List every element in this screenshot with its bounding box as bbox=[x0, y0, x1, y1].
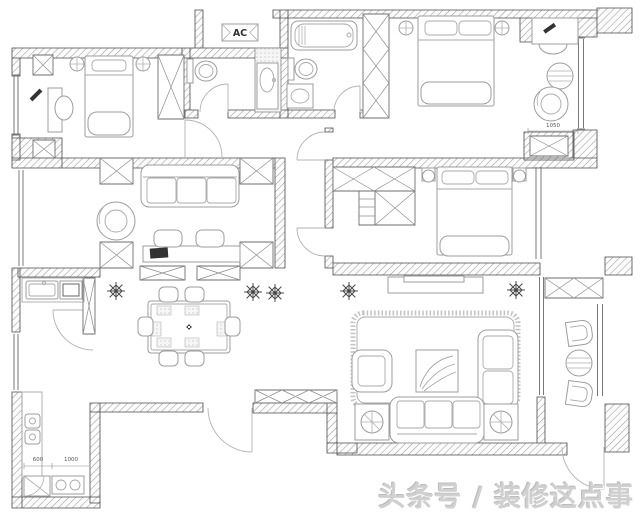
toilet1-tank bbox=[187, 59, 193, 83]
floor-plan-page: AC bbox=[0, 0, 640, 514]
study-chair1 bbox=[154, 230, 182, 247]
prep-sink-bowl1 bbox=[25, 414, 40, 428]
dining-chair-bottom2 bbox=[185, 351, 204, 366]
bed2-duvet-foot bbox=[440, 236, 509, 256]
dining-chair-left bbox=[138, 317, 153, 336]
wall-bedroom2-right bbox=[536, 167, 541, 259]
bed2-lamp-right-icon bbox=[514, 170, 526, 182]
toilet2-tank bbox=[288, 58, 294, 80]
prep-sink-bowl2 bbox=[25, 430, 40, 444]
dining-chair-top1 bbox=[159, 287, 178, 302]
ac-platform: AC bbox=[222, 24, 258, 41]
watermark-text: 头条号 / 装修这点事 bbox=[378, 475, 634, 514]
bedroom1-desk-chair bbox=[55, 96, 73, 120]
dining-chair-top2 bbox=[185, 287, 204, 302]
balcony-chair-bottom-shell bbox=[565, 380, 593, 407]
bedroom2-furniture bbox=[422, 167, 526, 256]
master-swivel-chair bbox=[534, 87, 568, 121]
door-bedroom2-bottom bbox=[297, 228, 325, 256]
living-room-furniture bbox=[352, 276, 518, 443]
dining-furniture bbox=[138, 287, 240, 366]
window-bedroom1-left bbox=[12, 75, 20, 135]
toilet1-bowl bbox=[195, 61, 217, 81]
door-bath1 bbox=[200, 84, 228, 112]
vanity1-counter bbox=[257, 63, 278, 109]
plant-icon bbox=[266, 284, 284, 302]
dim-1050-label: 1050 bbox=[546, 123, 560, 129]
balcony-chair-top-shell bbox=[565, 319, 593, 346]
bathroom1-fixtures bbox=[187, 59, 278, 109]
bed1-duvet-foot bbox=[88, 112, 130, 135]
study-laptop-icon bbox=[150, 247, 169, 258]
door-bath2 bbox=[334, 86, 360, 112]
plant-icon bbox=[507, 281, 525, 299]
placemat bbox=[157, 306, 171, 315]
plant-icon bbox=[244, 283, 262, 301]
balcony-chair-bottom bbox=[565, 380, 593, 407]
window-master-right bbox=[577, 38, 585, 129]
balcony-furniture bbox=[565, 319, 593, 407]
study-sofa bbox=[141, 165, 239, 207]
door-hall bbox=[185, 120, 222, 157]
ac-label: AC bbox=[233, 28, 247, 39]
dining-chair-right bbox=[225, 317, 240, 336]
master-desk bbox=[532, 18, 578, 44]
master-bedroom-furniture: 1050 bbox=[399, 16, 578, 134]
tv-set bbox=[404, 276, 464, 282]
window-study-left bbox=[19, 170, 23, 266]
master-desk-chair bbox=[539, 44, 567, 54]
desk1-pen-icon bbox=[30, 89, 43, 102]
bathroom2-fixtures bbox=[287, 21, 357, 108]
glass-partition-balcony bbox=[540, 277, 544, 395]
bed2-lamp-left-icon bbox=[423, 170, 435, 182]
plant-icon bbox=[340, 282, 358, 300]
kitchen-dim-line bbox=[24, 463, 90, 469]
kitchen-fixtures: 600 1000 bbox=[22, 278, 90, 496]
door-bedroom2-top bbox=[297, 132, 325, 160]
dining-chair-bottom1 bbox=[159, 351, 178, 366]
window-balcony-right bbox=[598, 304, 603, 396]
dim-1000-label: 1000 bbox=[64, 457, 78, 463]
balcony-chair-top bbox=[565, 319, 593, 346]
stove bbox=[52, 476, 84, 494]
master-duvet-foot bbox=[421, 82, 491, 104]
floor-plan-drawing: AC bbox=[0, 0, 640, 514]
toilet2-bowl bbox=[295, 59, 317, 79]
study-swivel-chair bbox=[97, 202, 135, 240]
window-kitchen-left bbox=[14, 334, 18, 390]
dim-600-label: 600 bbox=[33, 457, 44, 463]
door-entry bbox=[208, 408, 252, 452]
placemat bbox=[157, 338, 171, 347]
plant-icon bbox=[107, 282, 125, 300]
placemat bbox=[185, 338, 199, 347]
study-chair2 bbox=[196, 230, 224, 247]
sofa-three-seat bbox=[390, 397, 484, 443]
placemat bbox=[185, 306, 199, 315]
